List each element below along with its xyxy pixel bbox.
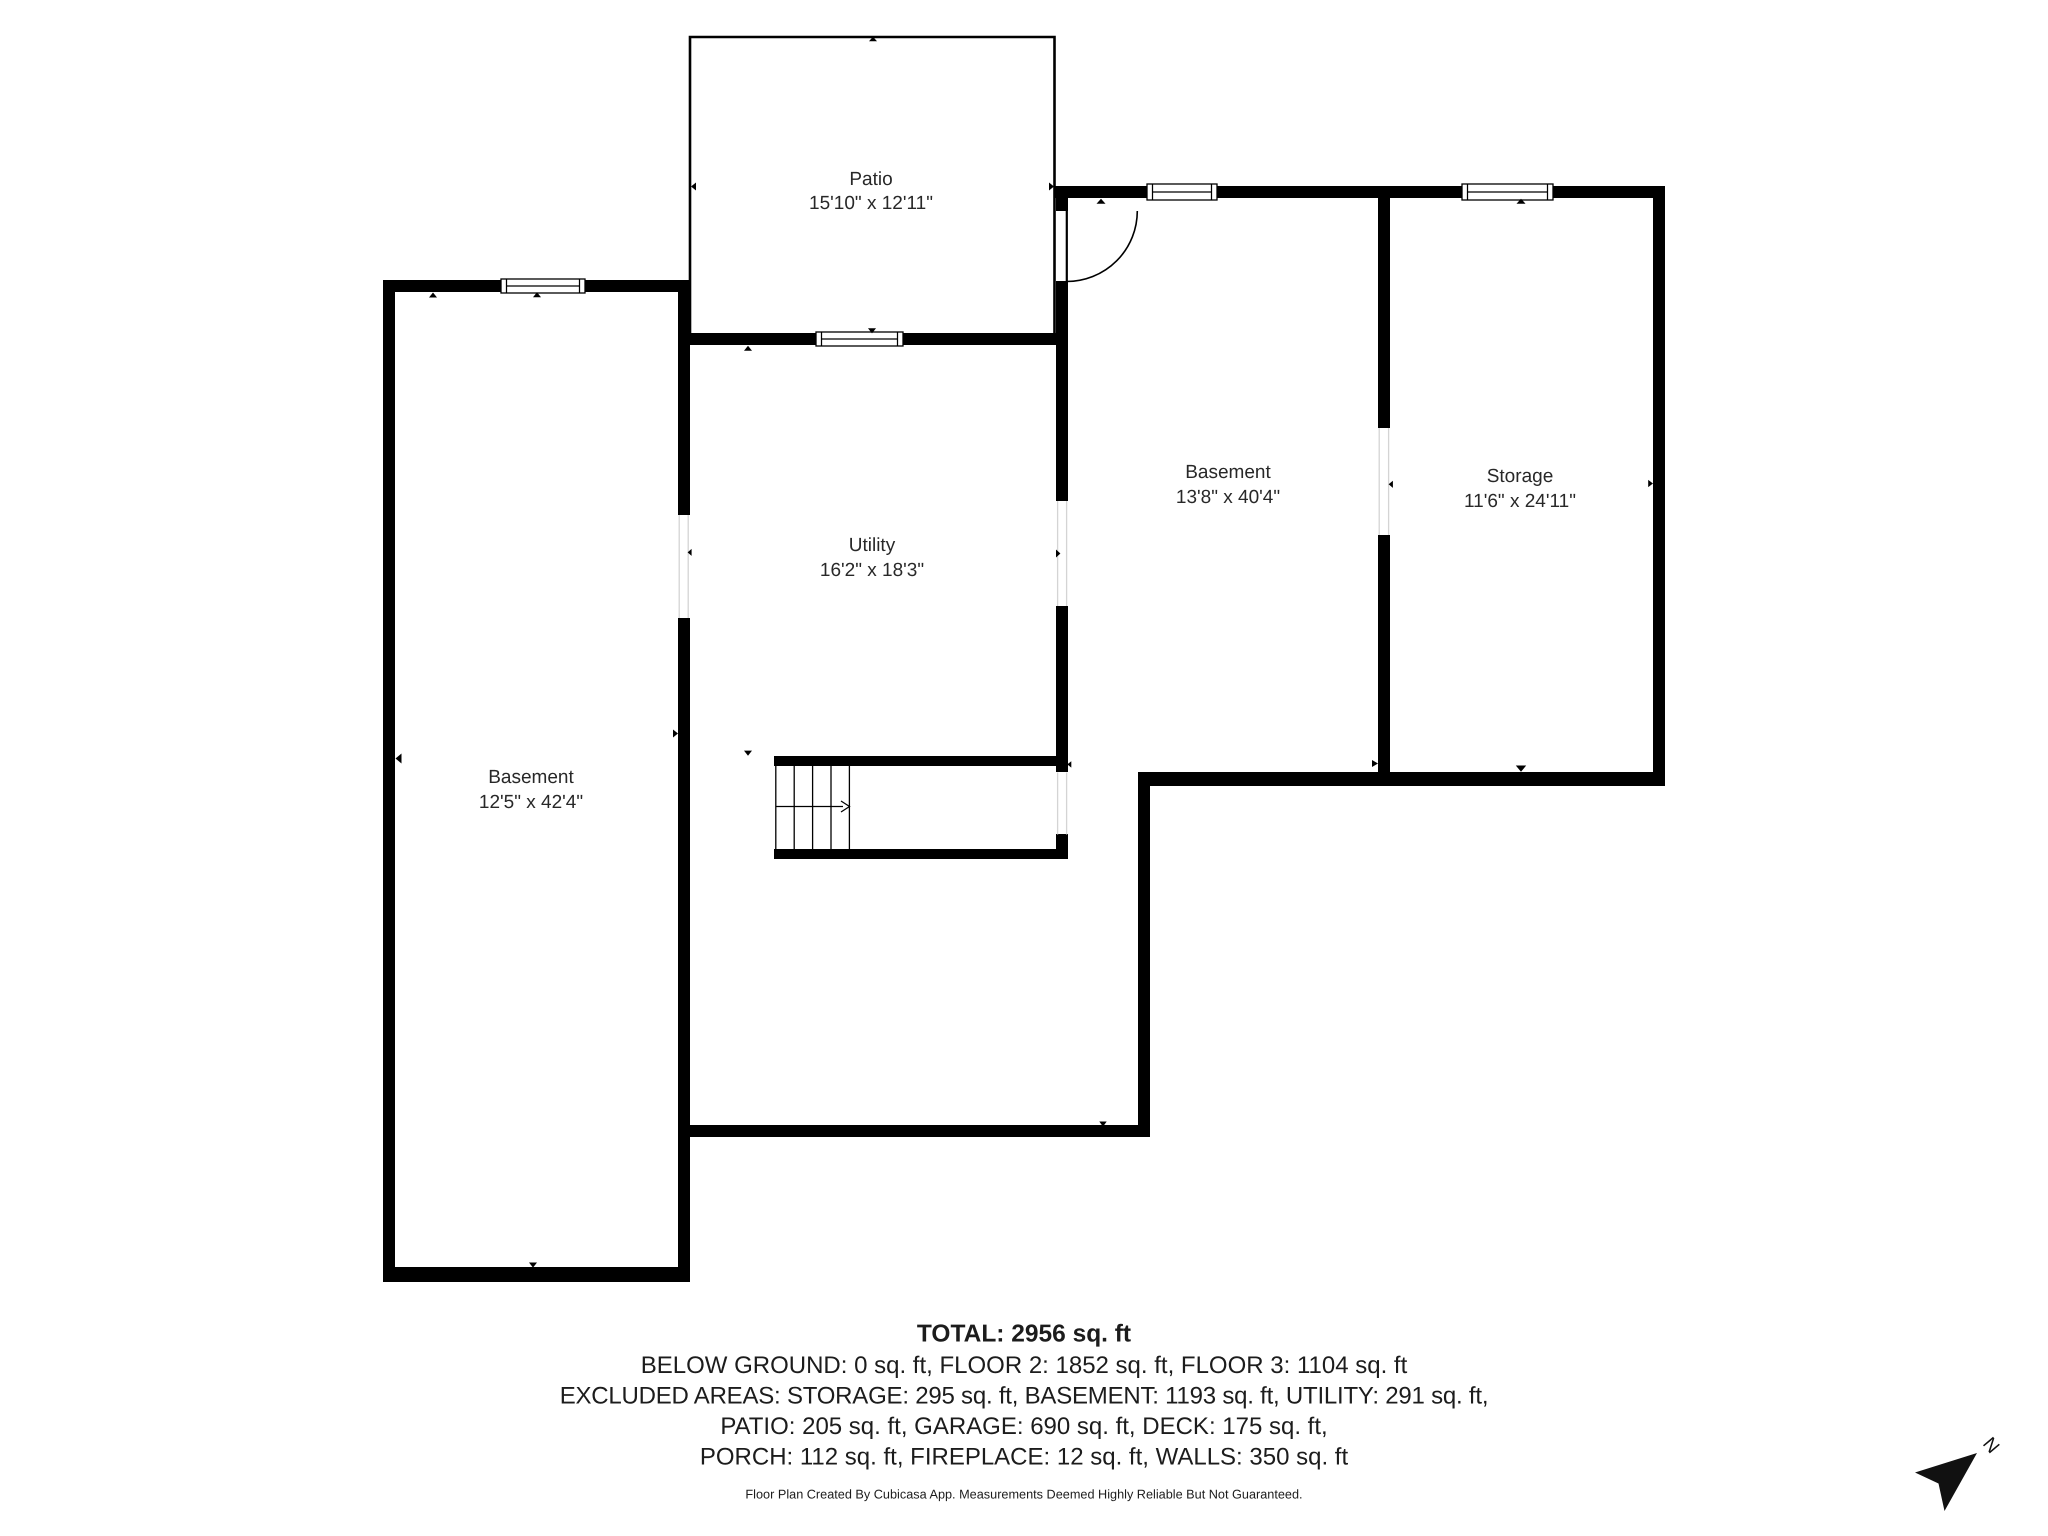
svg-text:15'10" x 12'11": 15'10" x 12'11" — [809, 193, 933, 214]
svg-text:TOTAL: 2956 sq. ft: TOTAL: 2956 sq. ft — [917, 1321, 1131, 1348]
svg-text:Floor Plan Created By Cubicasa: Floor Plan Created By Cubicasa App. Meas… — [745, 1488, 1302, 1502]
svg-text:PATIO: 205 sq. ft, GARAGE: 690: PATIO: 205 sq. ft, GARAGE: 690 sq. ft, D… — [720, 1413, 1327, 1440]
svg-text:Utility: Utility — [849, 535, 896, 556]
svg-text:BELOW GROUND: 0 sq. ft, FLOOR: BELOW GROUND: 0 sq. ft, FLOOR 2: 1852 sq… — [641, 1352, 1408, 1379]
svg-text:11'6" x 24'11": 11'6" x 24'11" — [1464, 491, 1576, 512]
svg-text:Basement: Basement — [1185, 462, 1271, 483]
svg-text:16'2" x 18'3": 16'2" x 18'3" — [820, 560, 924, 581]
svg-text:13'8" x 40'4": 13'8" x 40'4" — [1176, 487, 1280, 508]
svg-text:PORCH: 112 sq. ft, FIREPLACE:: PORCH: 112 sq. ft, FIREPLACE: 12 sq. ft,… — [700, 1444, 1349, 1471]
svg-text:EXCLUDED AREAS: STORAGE: 295 s: EXCLUDED AREAS: STORAGE: 295 sq. ft, BAS… — [560, 1383, 1489, 1410]
svg-text:12'5" x 42'4": 12'5" x 42'4" — [479, 792, 583, 813]
svg-text:Storage: Storage — [1487, 466, 1554, 487]
svg-text:Patio: Patio — [849, 169, 892, 190]
svg-text:Basement: Basement — [488, 767, 574, 788]
